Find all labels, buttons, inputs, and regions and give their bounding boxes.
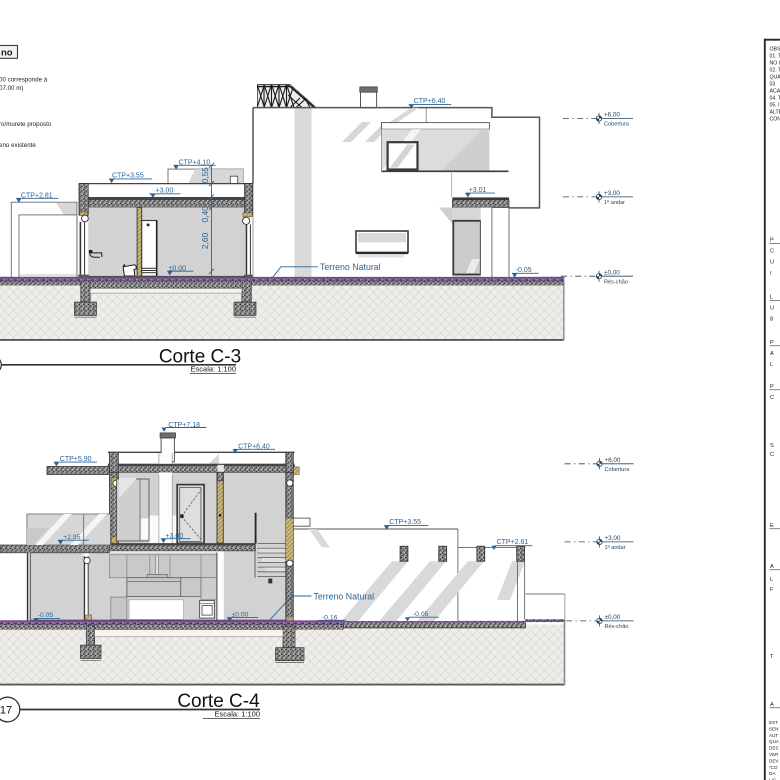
svg-text:+3,00: +3,00 <box>605 535 621 542</box>
svg-text:ACA: ACA <box>770 89 780 95</box>
svg-text:L: L <box>770 362 773 368</box>
svg-text:CTP+6.40: CTP+6.40 <box>414 98 446 105</box>
svg-text:Rés-chão: Rés-chão <box>605 624 629 630</box>
svg-text:F: F <box>770 587 774 593</box>
svg-text:Terreno Natural: Terreno Natural <box>314 591 375 601</box>
svg-text:r: r <box>770 271 772 277</box>
svg-text:C: C <box>770 249 774 255</box>
svg-text:±0,00: ±0,00 <box>604 269 620 276</box>
svg-text:no: no <box>1 48 13 59</box>
svg-text:+6,00: +6,00 <box>605 457 621 464</box>
svg-text:±0,00: ±0,00 <box>605 614 621 621</box>
svg-text:P: P <box>770 238 774 244</box>
svg-text:07.00 m): 07.00 m) <box>0 85 23 92</box>
svg-text:U: U <box>770 306 774 312</box>
svg-text:03.: 03. <box>770 82 777 88</box>
svg-text:E: E <box>770 523 774 529</box>
svg-text:A: A <box>770 702 774 708</box>
svg-text:OBS: OBS <box>770 47 780 53</box>
svg-text:0,55: 0,55 <box>200 167 210 184</box>
svg-text:17: 17 <box>0 705 12 717</box>
svg-text:“CO: “CO <box>769 765 778 770</box>
svg-text:C: C <box>770 395 774 401</box>
svg-text:S: S <box>770 443 774 449</box>
svg-text:eno existente: eno existente <box>0 142 36 149</box>
svg-text:EST: EST <box>769 720 778 725</box>
svg-text:U: U <box>770 260 774 266</box>
svg-text:VER: VER <box>769 752 779 757</box>
svg-text:AUT: AUT <box>769 733 778 738</box>
svg-text:8: 8 <box>770 317 773 323</box>
svg-text:+3.00: +3.00 <box>156 187 174 194</box>
svg-text:CON: CON <box>770 117 780 123</box>
svg-text:L: L <box>770 295 773 301</box>
svg-text:ro/murete proposto: ro/murete proposto <box>0 121 52 128</box>
svg-text:04. T: 04. T <box>770 96 780 102</box>
svg-text:CTP+2.81: CTP+2.81 <box>497 539 529 546</box>
svg-text:1º andar: 1º andar <box>605 544 626 551</box>
svg-text:L: L <box>770 577 773 583</box>
svg-text:Cobertura: Cobertura <box>604 122 630 128</box>
svg-text:DA: DA <box>769 771 776 776</box>
svg-text:0,40: 0,40 <box>200 206 210 223</box>
svg-text:2,60: 2,60 <box>200 233 210 250</box>
svg-text:T: T <box>770 654 774 660</box>
svg-text:05. II: 05. II <box>770 103 780 109</box>
svg-text:Terreno Natural: Terreno Natural <box>320 262 381 272</box>
svg-text:QUA: QUA <box>770 75 780 81</box>
svg-text:ALTE: ALTE <box>770 110 780 116</box>
svg-text:SEN: SEN <box>769 726 778 731</box>
svg-text:1º andar: 1º andar <box>604 199 625 206</box>
svg-text:DEV: DEV <box>769 758 779 763</box>
svg-text:C: C <box>770 452 774 458</box>
svg-text:02. T: 02. T <box>770 68 780 74</box>
svg-text:QUA: QUA <box>769 739 780 744</box>
svg-text:P: P <box>770 384 774 390</box>
svg-text:+6,00: +6,00 <box>604 112 620 119</box>
svg-text:Cobertura: Cobertura <box>605 467 631 473</box>
svg-text:Escala: 1:100: Escala: 1:100 <box>191 365 236 374</box>
svg-text:A: A <box>770 564 774 570</box>
svg-text:01. T: 01. T <box>770 54 780 60</box>
svg-text:CTP+3.55: CTP+3.55 <box>112 172 144 179</box>
svg-text:Escala: 1:100: Escala: 1:100 <box>215 710 260 719</box>
svg-text:+3,00: +3,00 <box>604 190 620 197</box>
svg-text:A: A <box>770 351 774 357</box>
svg-text:00 corresponde à: 00 corresponde à <box>0 77 48 84</box>
svg-text:P: P <box>770 340 774 346</box>
svg-text:DES: DES <box>769 746 778 751</box>
svg-text:CTP+3.55: CTP+3.55 <box>389 519 421 526</box>
svg-text:Rés-chão: Rés-chão <box>604 279 628 285</box>
svg-text:NO L: NO L <box>770 61 780 67</box>
